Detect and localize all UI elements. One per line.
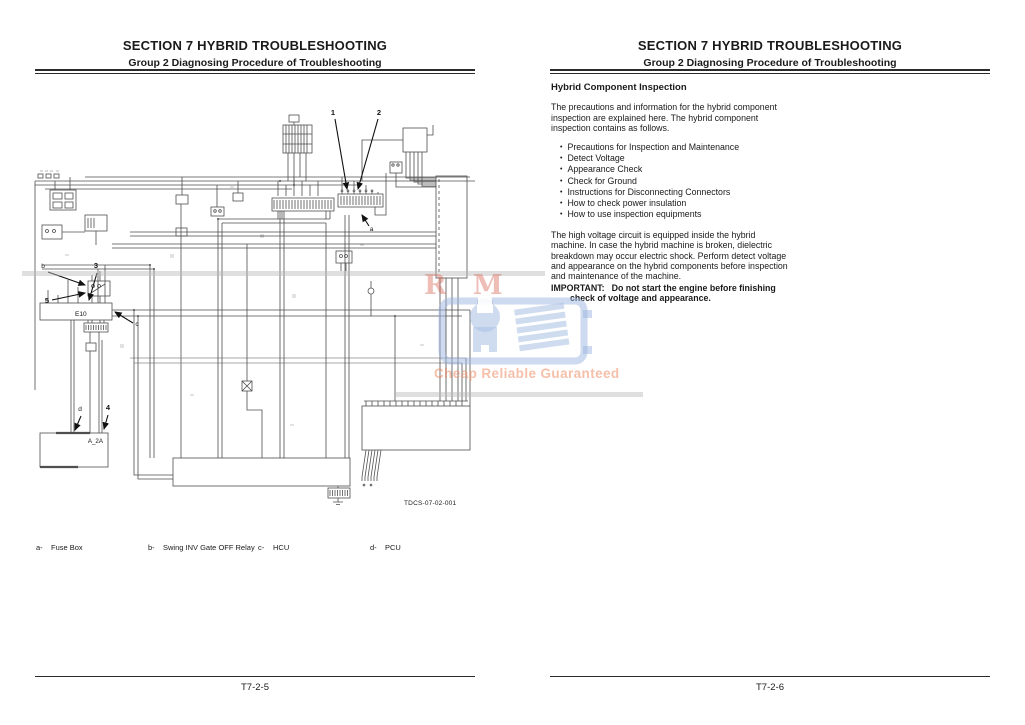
- right-section-title: SECTION 7 HYBRID TROUBLESHOOTING: [550, 38, 990, 53]
- right-page-content: Hybrid Component Inspection The precauti…: [551, 83, 793, 304]
- bottom-junction-box: [173, 458, 350, 505]
- right-footer-rule: [550, 676, 990, 677]
- list-item: Detect Voltage: [560, 153, 793, 164]
- hcu-tall-box: [436, 176, 467, 278]
- legend-key-c: c-: [258, 543, 273, 552]
- grid-connector: [283, 115, 312, 185]
- right-group-title: Group 2 Diagnosing Procedure of Troubles…: [550, 57, 990, 69]
- legend-item-d: d-PCU: [370, 543, 401, 552]
- figure-code: TDCS-07-02-001: [404, 500, 456, 507]
- e10-label: E10: [75, 311, 87, 318]
- callout-2: 2: [377, 108, 381, 117]
- right-page-header: SECTION 7 HYBRID TROUBLESHOOTING Group 2…: [550, 38, 990, 69]
- legend-item-a: a-Fuse Box: [36, 543, 83, 552]
- wiring-diagram: 1 2 a 3 b 5 c d 4 E10 A_2A: [30, 95, 480, 510]
- left-page-number: T7-2-5: [35, 682, 475, 693]
- right-bottom-box: [362, 278, 470, 486]
- diagram-wires: [35, 115, 475, 505]
- legend-key-a: a-: [36, 543, 51, 552]
- legend-item-b: b-Swing INV Gate OFF Relay: [148, 543, 255, 552]
- callout-c: c: [135, 321, 139, 328]
- legend-label-d: PCU: [385, 543, 401, 552]
- intro-paragraph: The precautions and information for the …: [551, 102, 793, 133]
- list-item: How to use inspection equipments: [560, 209, 793, 220]
- legend-key-d: d-: [370, 543, 385, 552]
- list-item: Instructions for Disconnecting Connector…: [560, 187, 793, 198]
- callout-3: 3: [94, 261, 98, 270]
- body-paragraph: The high voltage circuit is equipped ins…: [551, 230, 793, 282]
- important-label: IMPORTANT:: [551, 283, 605, 293]
- callout-b: b: [41, 263, 45, 270]
- document-icon: [514, 303, 569, 352]
- important-note: IMPORTANT:Do not start the engine before…: [551, 283, 793, 304]
- legend-key-b: b-: [148, 543, 163, 552]
- left-group-title: Group 2 Diagnosing Procedure of Troubles…: [35, 57, 475, 69]
- list-item: Precautions for Inspection and Maintenan…: [560, 142, 793, 153]
- legend-item-c: c-HCU: [258, 543, 289, 552]
- swing-inv-relay: [88, 271, 110, 303]
- left-page-header: SECTION 7 HYBRID TROUBLESHOOTING Group 2…: [35, 38, 475, 69]
- topic-title: Hybrid Component Inspection: [551, 83, 793, 93]
- callout-a: a: [370, 226, 374, 233]
- inspection-list: Precautions for Inspection and Maintenan…: [551, 142, 793, 221]
- right-page-number: T7-2-6: [550, 682, 990, 693]
- legend-label-a: Fuse Box: [51, 543, 83, 552]
- callout-5: 5: [45, 296, 49, 305]
- left-header-rule: [35, 69, 475, 74]
- callout-4: 4: [106, 403, 111, 412]
- connector-comb: [272, 177, 334, 219]
- right-header-rule: [550, 69, 990, 74]
- legend-label-b: Swing INV Gate OFF Relay: [163, 543, 255, 552]
- a2a-label: A_2A: [88, 438, 104, 445]
- list-item: Appearance Check: [560, 164, 793, 175]
- callout-d: d: [78, 406, 82, 413]
- manual-spread: SECTION 7 HYBRID TROUBLESHOOTING Group 2…: [0, 0, 1025, 725]
- legend-label-c: HCU: [273, 543, 289, 552]
- left-section-title: SECTION 7 HYBRID TROUBLESHOOTING: [35, 38, 475, 53]
- callout-arrows: [48, 119, 378, 430]
- list-item: How to check power insulation: [560, 198, 793, 209]
- callout-1: 1: [331, 108, 335, 117]
- list-item: Check for Ground: [560, 176, 793, 187]
- left-footer-rule: [35, 676, 475, 677]
- wrench-notch: [478, 297, 492, 309]
